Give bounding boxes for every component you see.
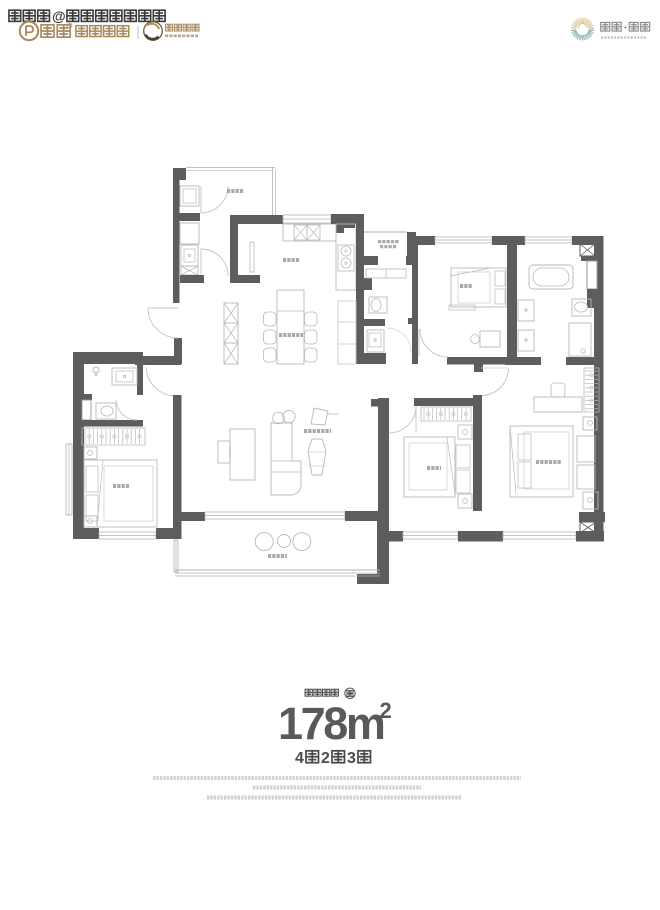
svg-text:4: 4 <box>295 750 304 767</box>
svg-text:2: 2 <box>380 698 392 723</box>
svg-text:3: 3 <box>347 750 356 767</box>
svg-text:@: @ <box>52 8 66 24</box>
svg-text:2: 2 <box>321 750 330 767</box>
svg-text:178m: 178m <box>278 698 384 749</box>
